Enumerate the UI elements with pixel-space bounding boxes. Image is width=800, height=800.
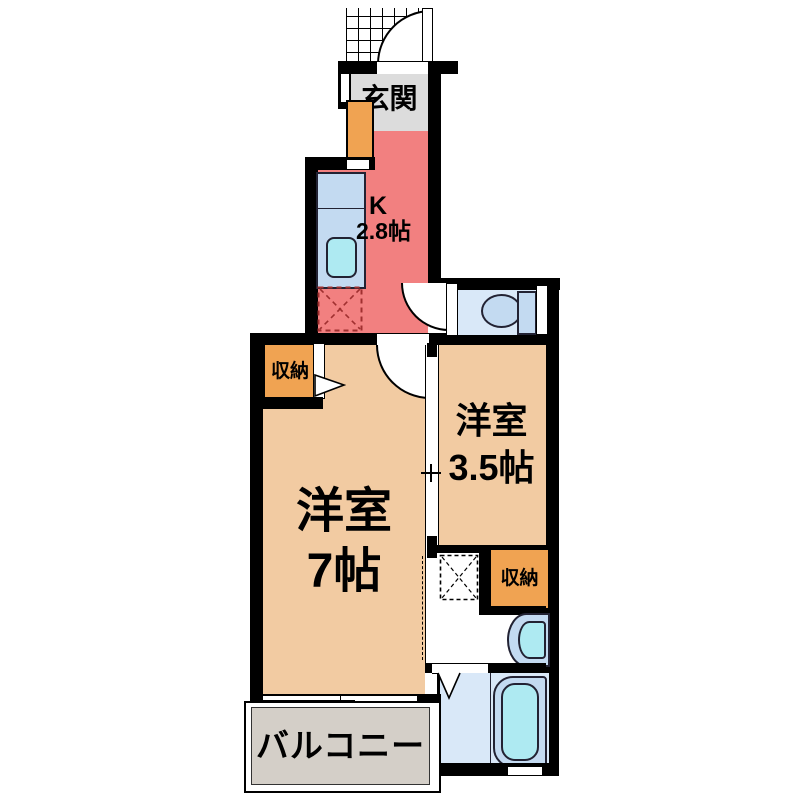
closet-upper: 収納 <box>263 343 317 401</box>
floor-plan: 玄関 K 2.8帖 収納 <box>0 0 800 800</box>
wall-segment <box>250 397 323 409</box>
main-room-size: 7帖 <box>263 542 425 602</box>
main-room-label: 洋室 7帖 <box>263 482 425 602</box>
toilet-icon <box>481 294 522 328</box>
washbasin-bowl-icon <box>518 621 546 659</box>
bathtub-icon <box>493 676 547 768</box>
closet-lower: 収納 <box>489 548 550 610</box>
sliding-door-cross-mark <box>430 464 432 482</box>
kitchen-size-label: 2.8帖 <box>356 218 411 244</box>
balcony-floor: バルコニー <box>251 707 430 785</box>
kitchen-sink-icon <box>326 237 357 278</box>
washbasin-icon <box>507 613 550 667</box>
main-room-name: 洋室 <box>263 482 425 542</box>
wall-segment <box>441 335 546 345</box>
sub-room-name: 洋室 <box>437 398 546 445</box>
bathtub-inner-icon <box>501 683 539 761</box>
entrance-door-leaf-icon <box>422 8 433 65</box>
wall-segment <box>427 536 437 558</box>
sub-room-label: 洋室 3.5帖 <box>437 398 546 492</box>
entrance-door-sill <box>376 61 430 75</box>
wall-segment <box>427 343 437 357</box>
bathroom-window-icon <box>507 766 543 776</box>
wall-segment <box>428 61 441 290</box>
kitchen-window-icon <box>346 159 370 170</box>
toilet-window-icon <box>536 285 548 335</box>
washer-space-icon <box>439 554 479 601</box>
counter-divider-line <box>318 208 364 209</box>
closet-folding-door-triangle-icon <box>314 372 346 399</box>
wall-segment <box>479 548 489 610</box>
entrance-side-window-icon <box>340 73 350 103</box>
toilet-door-leaf-icon <box>446 283 458 339</box>
closet-lower-label: 収納 <box>500 568 538 590</box>
kitchen-abbr-label: K <box>369 192 387 221</box>
bathroom-divider-line <box>490 673 491 763</box>
fridge-space-icon <box>317 286 363 332</box>
closet-upper-label: 収納 <box>271 361 309 383</box>
balcony-label: バルコニー <box>256 727 425 765</box>
shoe-cabinet <box>346 100 374 161</box>
toilet-tank-icon <box>517 291 537 335</box>
sub-room-size: 3.5帖 <box>437 445 546 492</box>
wall-segment <box>250 333 263 705</box>
